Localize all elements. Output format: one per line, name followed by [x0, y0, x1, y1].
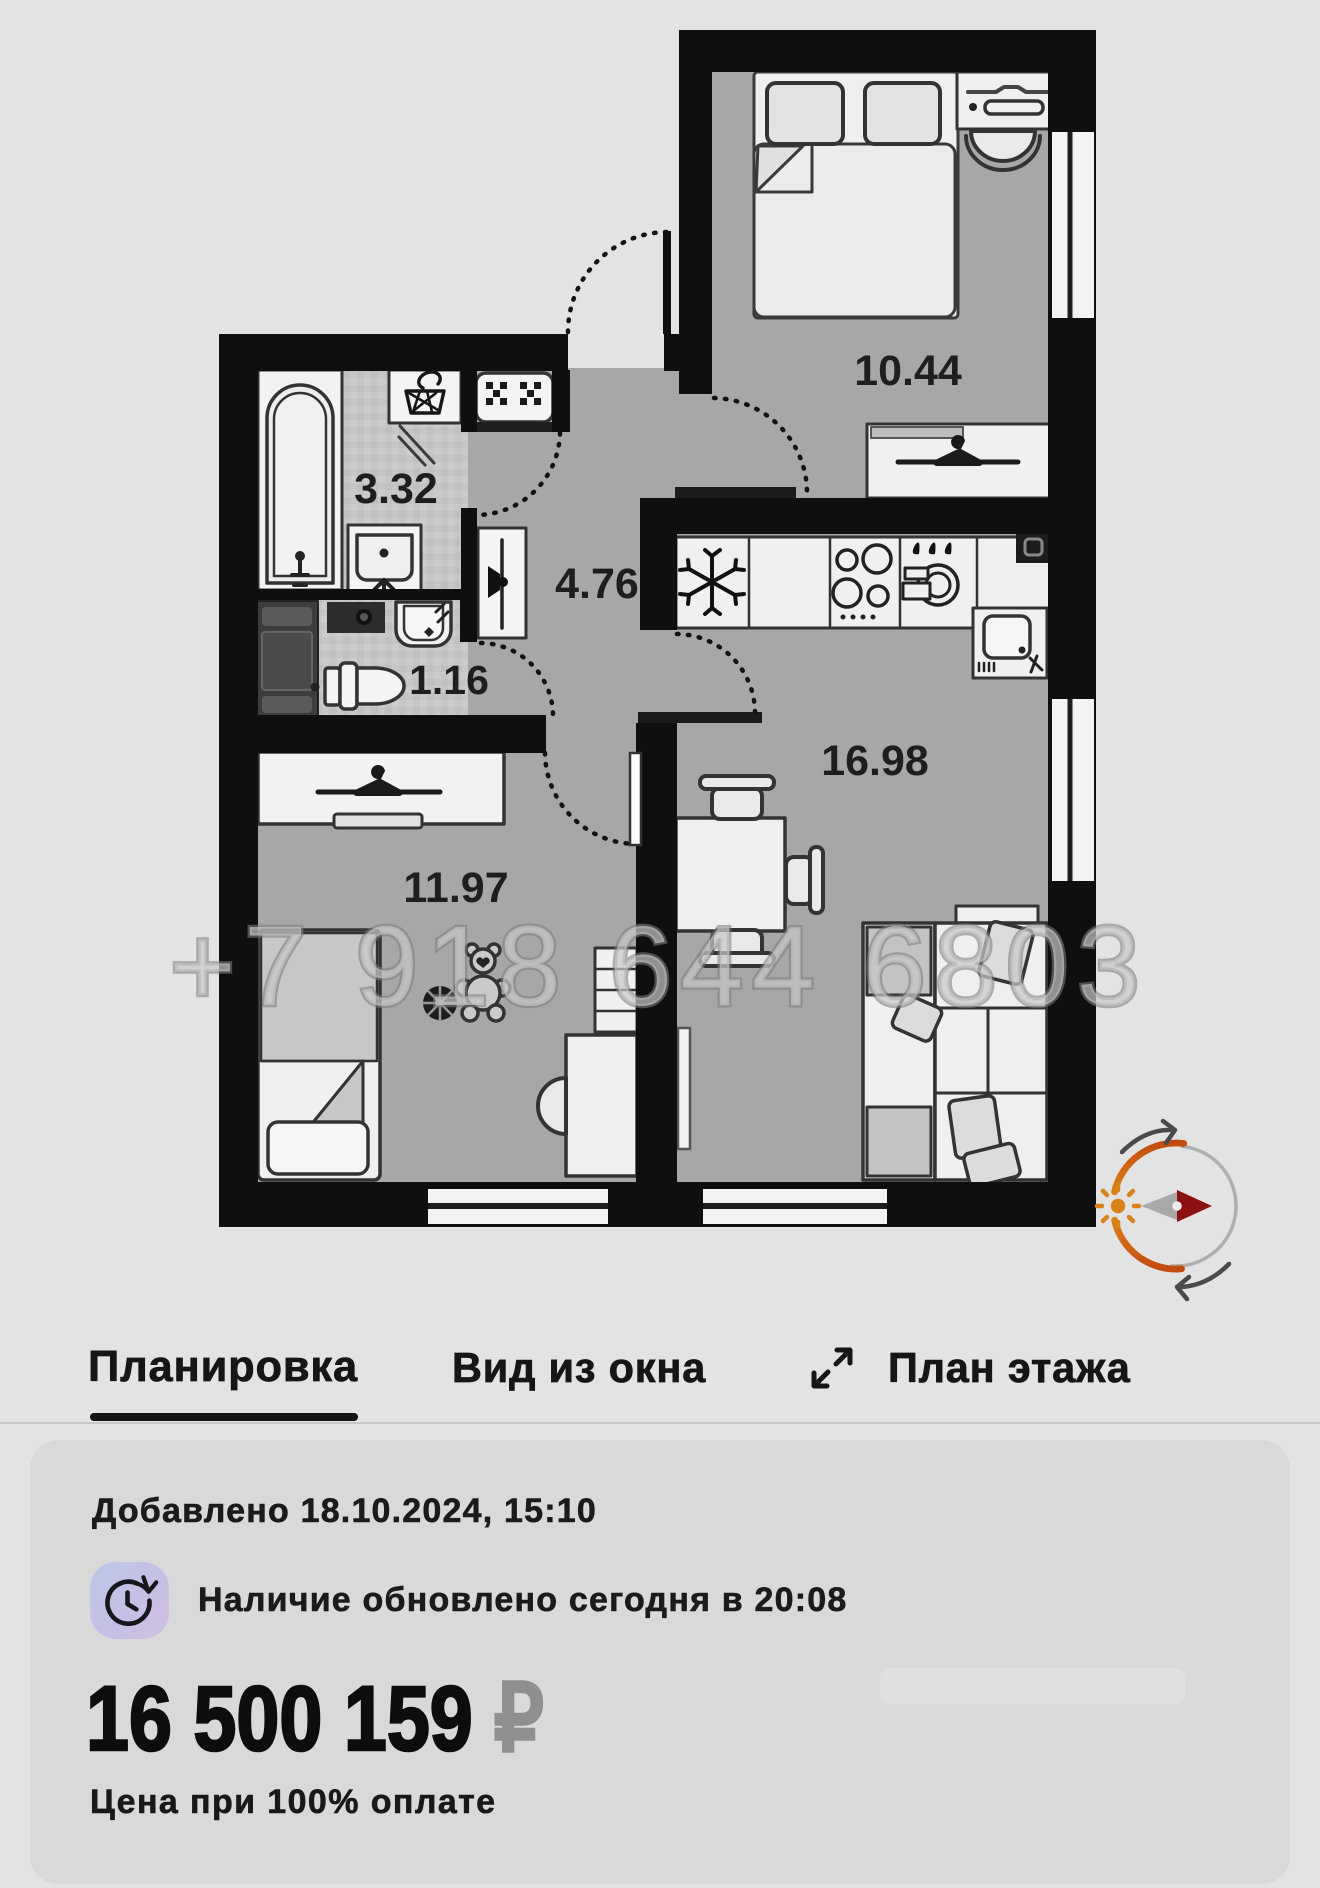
svg-text:3.32: 3.32	[354, 465, 438, 513]
svg-text:4.76: 4.76	[555, 560, 639, 608]
svg-text:10.44: 10.44	[854, 347, 962, 395]
svg-text:+7 918 644 6803: +7 918 644 6803	[170, 903, 1149, 1029]
svg-text:1.16: 1.16	[409, 657, 489, 703]
svg-text:16.98: 16.98	[821, 737, 929, 785]
